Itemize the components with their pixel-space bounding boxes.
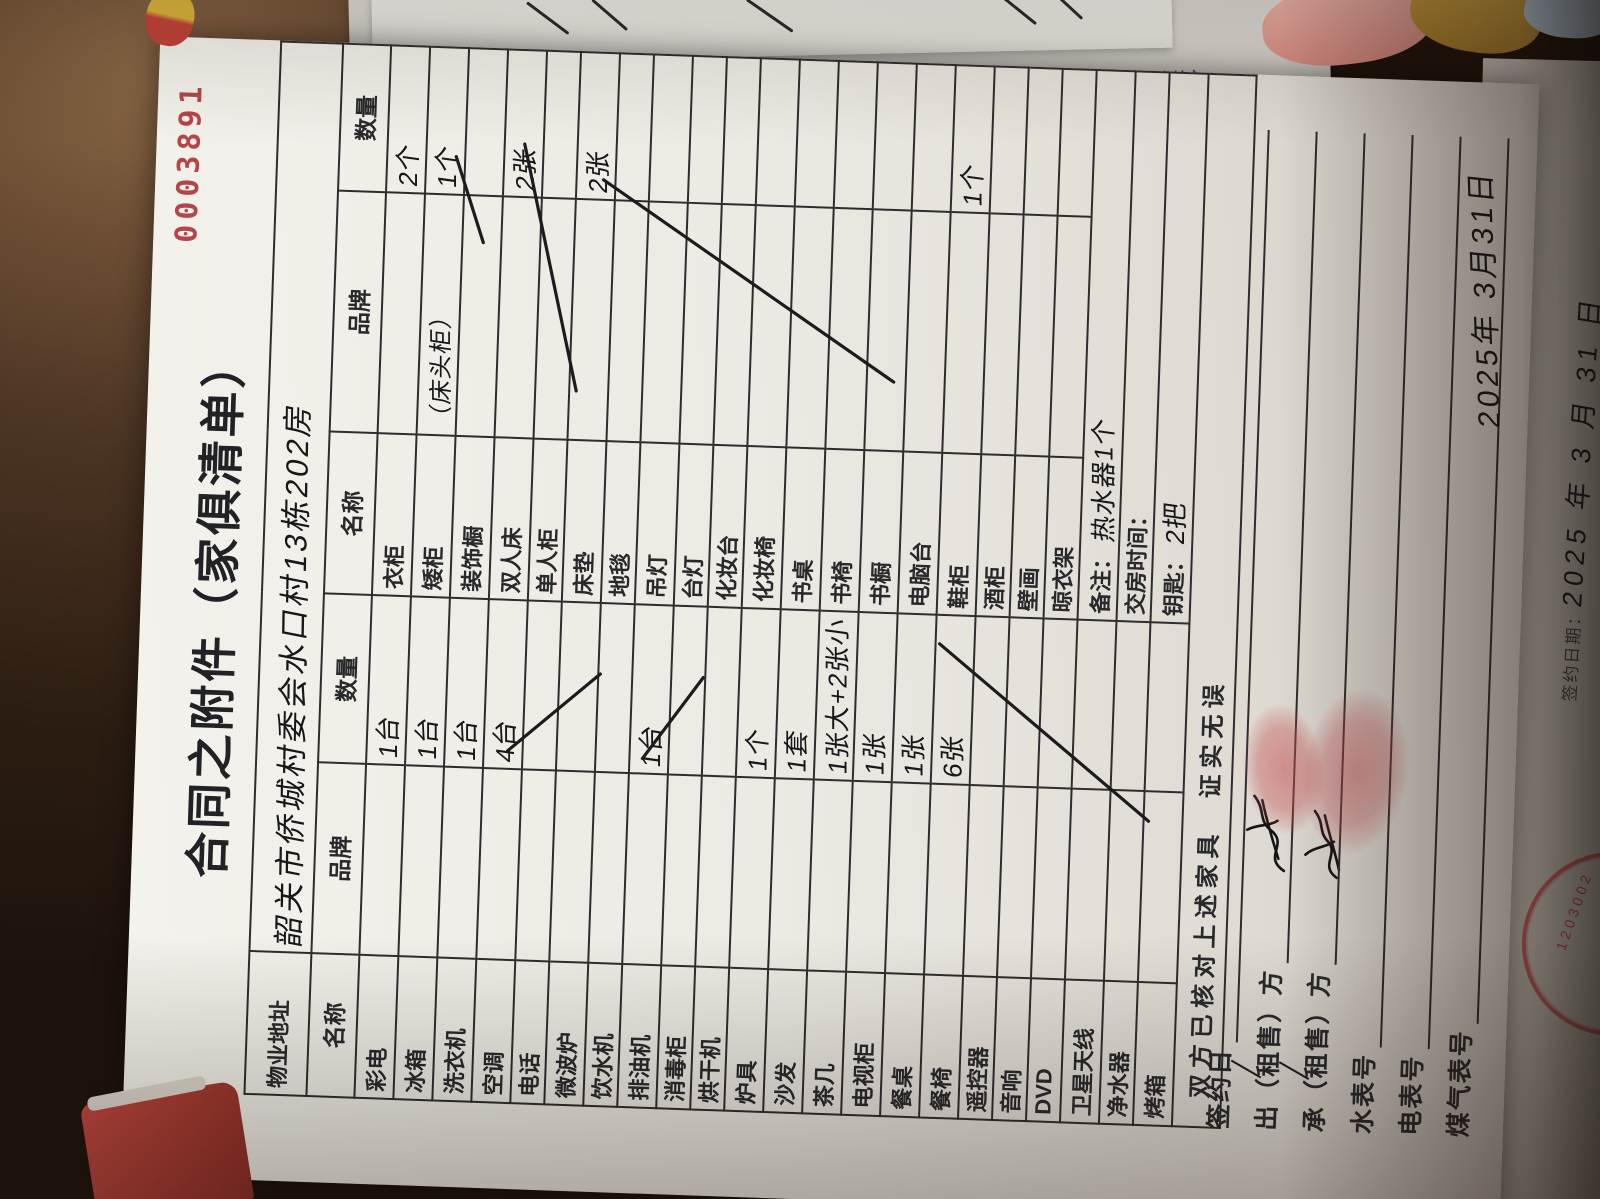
item-name: 地毯 <box>601 441 641 604</box>
item-name: 洗衣机 <box>432 957 476 1102</box>
item-qty <box>873 62 917 210</box>
item-qty: 1张 <box>892 614 937 784</box>
item-brand <box>846 781 892 973</box>
item-qty <box>556 602 601 772</box>
qty-handwriting: 4台 <box>485 717 522 765</box>
item-name: 冰箱 <box>393 956 437 1101</box>
property-address-handwriting: 韶关市侨城村委会水口村13栋202房 <box>263 397 317 951</box>
item-name: 饮水机 <box>583 962 622 1106</box>
contract-date-handwriting: 2025年 3月31日 <box>1455 166 1508 430</box>
signing-date-handwriting: 2025 年 3 月 31 日 <box>1550 290 1600 610</box>
item-qty <box>756 58 800 206</box>
item-qty: 1台 <box>366 595 411 765</box>
qty-handwriting: 2张 <box>505 145 542 193</box>
item-name: 空调 <box>471 959 515 1104</box>
item-name: 消毒柜 <box>656 965 695 1109</box>
item-qty <box>1072 620 1117 790</box>
item-qty: 1套 <box>775 610 820 780</box>
qty-handwriting: 1台 <box>368 713 405 761</box>
item-name: 电话 <box>510 960 549 1104</box>
item-name: 书橱 <box>859 450 904 613</box>
pen-stroke <box>526 1 569 34</box>
item-brand <box>476 768 522 960</box>
item-qty <box>542 51 581 199</box>
item-name: 烤箱 <box>1133 982 1177 1127</box>
qty-handwriting: 1张 <box>855 730 892 778</box>
brand-handwriting: （床头柜） <box>421 301 456 432</box>
item-qty <box>990 66 1029 214</box>
column-header-0: 名称 <box>306 953 359 1098</box>
item-brand <box>729 777 775 969</box>
item-brand <box>1065 789 1111 981</box>
item-name: 台灯 <box>674 444 714 607</box>
signing-date-label: 签约日期： <box>1560 606 1585 702</box>
item-name: 微波炉 <box>544 961 588 1106</box>
item-qty <box>912 64 956 212</box>
item-name: 餐椅 <box>919 974 963 1119</box>
item-name: 壁画 <box>1010 456 1050 619</box>
contract-page: 0003891 合同之附件（家俱清单） 物业地址韶关市侨城村委会水口村13栋20… <box>121 36 1540 1199</box>
item-qty <box>834 61 878 209</box>
signature-label: 水表号 <box>1343 1052 1382 1134</box>
item-name: 床垫 <box>562 440 607 603</box>
item-brand <box>924 784 970 976</box>
item-qty <box>1145 622 1190 792</box>
item-qty: 2个 <box>386 45 430 193</box>
signing-date-line: 签约日期：2025 年 3 月 31 日 <box>1544 292 1600 702</box>
item-qty <box>615 53 654 201</box>
seal-digits: 1203002 <box>1553 869 1596 952</box>
item-name: 餐桌 <box>880 973 924 1118</box>
item-name: 净水器 <box>1099 980 1138 1124</box>
item-qty: 2张 <box>503 49 547 197</box>
item-name: 化妆椅 <box>742 446 787 609</box>
item-qty: 1台 <box>629 604 674 774</box>
item-qty: 4台 <box>483 599 528 769</box>
item-qty <box>795 60 839 208</box>
column-header-1: 品牌 <box>311 763 366 955</box>
item-qty: 1个 <box>425 47 469 195</box>
item-name: 装饰橱 <box>450 436 495 599</box>
item-brand <box>549 771 595 963</box>
item-qty: 6张 <box>931 615 976 785</box>
item-qty: 1台 <box>405 597 450 767</box>
item-name: 茶几 <box>802 970 846 1115</box>
remark-handwriting: 2把 <box>1155 499 1192 547</box>
remark-handwriting: 热水器1个 <box>1083 415 1120 544</box>
item-name: 酒柜 <box>976 454 1016 617</box>
item-qty: 1张大+2张小 <box>814 611 859 781</box>
qty-handwriting: 1台 <box>446 716 483 764</box>
pen-stroke <box>1052 0 1083 20</box>
item-name: 化妆台 <box>708 445 748 608</box>
signature-label: 电表号 <box>1391 1054 1430 1136</box>
qty-handwriting: 1台 <box>407 714 444 762</box>
item-qty <box>688 56 727 204</box>
item-brand <box>622 773 668 965</box>
item-brand <box>1138 791 1184 983</box>
red-seal-stamp: 1203002 <box>1520 849 1600 1038</box>
item-name: DVD <box>1026 978 1065 1122</box>
column-header-3: 名称 <box>324 432 378 596</box>
item-brand <box>398 766 444 958</box>
qty-handwriting: 2张 <box>578 147 615 195</box>
signature-label: 承（租售）方 <box>1295 970 1337 1133</box>
item-qty <box>649 55 693 203</box>
item-name: 书椅 <box>820 449 865 612</box>
red-stamp-pad <box>80 1080 255 1199</box>
item-name: 单人柜 <box>528 439 568 602</box>
item-qty <box>464 48 508 196</box>
qty-handwriting: 1套 <box>777 727 814 775</box>
qty-handwriting: 2个 <box>388 141 425 189</box>
item-name: 电视柜 <box>841 971 885 1116</box>
item-name: 书桌 <box>781 448 826 611</box>
qty-handwriting: 6张 <box>933 733 970 781</box>
item-qty <box>722 57 761 205</box>
item-qty: 1个 <box>736 608 781 778</box>
item-name: 吊灯 <box>635 443 680 606</box>
signature-label: 出（租售）方 <box>1247 968 1289 1131</box>
item-name: 烘干机 <box>690 966 729 1110</box>
item-qty: 1个 <box>951 65 995 213</box>
item-brand <box>437 767 483 959</box>
item-qty: 1张 <box>853 612 898 782</box>
item-name: 矮柜 <box>411 435 456 598</box>
item-name: 鞋柜 <box>937 453 982 616</box>
photo-scene: 联：公司联（白） 第二联：业主联（红） 第三联：客户联（黄） 签约日期：2025… <box>0 0 1600 1199</box>
column-header-5: 数量 <box>338 44 391 193</box>
item-name: 遥控器 <box>958 976 997 1120</box>
item-name: 彩电 <box>354 954 398 1099</box>
qty-handwriting: 1张大+2张小 <box>818 616 855 777</box>
item-brand <box>768 779 814 971</box>
item-name: 电脑台 <box>898 452 943 615</box>
qty-handwriting: 1个 <box>953 160 990 208</box>
qty-handwriting: 1个 <box>427 142 464 190</box>
item-name: 晾衣架 <box>1044 457 1084 620</box>
item-name: 衣柜 <box>372 433 417 596</box>
column-header-4: 品牌 <box>330 190 386 433</box>
furniture-table: 物业地址韶关市侨城村委会水口村13栋202房名称品牌数量名称品牌数量彩电1台衣柜… <box>243 40 1257 1128</box>
item-name: 双人床 <box>489 437 534 600</box>
item-qty <box>1024 68 1063 216</box>
column-header-2: 数量 <box>318 594 372 765</box>
item-brand <box>807 780 853 972</box>
item-brand <box>359 764 405 956</box>
item-name: 炉具 <box>724 967 768 1112</box>
item-name: 沙发 <box>763 969 807 1114</box>
qty-handwriting: 1张 <box>894 731 931 779</box>
item-name: 排油机 <box>617 964 661 1109</box>
item-qty: 1台 <box>444 598 489 768</box>
property-address-label: 物业地址 <box>244 951 311 1096</box>
item-qty: 2张 <box>576 52 620 200</box>
qty-handwriting: 1个 <box>738 726 775 774</box>
qty-handwriting: 1台 <box>631 722 668 770</box>
item-name: 卫星天线 <box>1060 979 1104 1124</box>
signature-label: 煤气表号 <box>1439 1029 1479 1138</box>
item-name: 音响 <box>992 977 1031 1121</box>
pen-stroke <box>997 0 1038 25</box>
item-qty <box>1058 69 1097 217</box>
pen-stroke <box>592 0 628 31</box>
pen-stroke <box>746 0 793 32</box>
item-brand <box>885 783 931 975</box>
